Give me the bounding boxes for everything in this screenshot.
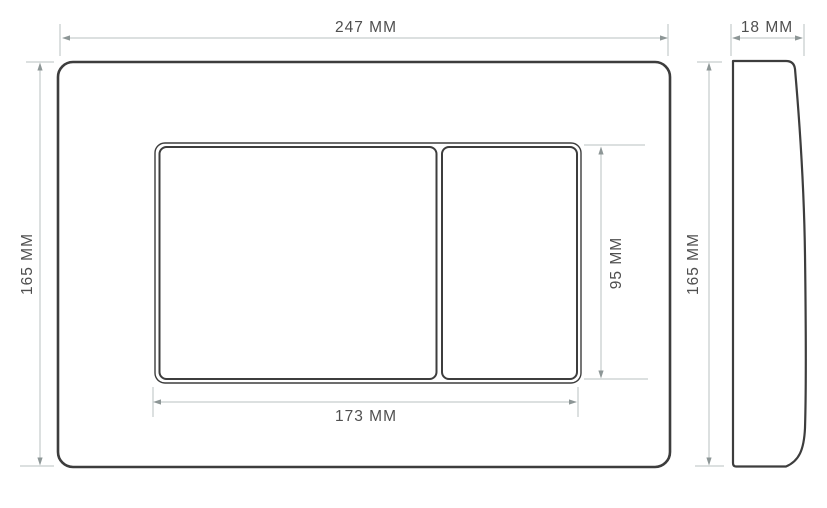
side-view [733,61,806,467]
front-width-label: 247 MM [335,19,397,36]
front-height-label: 165 MM [19,233,36,295]
dimension-drawing-canvas: 247 MM 165 MM 173 MM 95 MM 165 MM [0,0,827,508]
small-flush-button [442,147,577,379]
dimension-side-depth: 18 MM [731,19,804,56]
panel-width-label: 173 MM [335,408,397,425]
arrowhead-right-icon [795,35,803,40]
arrowhead-down-icon [706,458,711,466]
arrowhead-down-icon [598,371,603,379]
panel-height-label: 95 MM [608,237,625,289]
arrowhead-left-icon [62,35,70,40]
dimension-front-width: 247 MM [60,19,668,56]
button-recess-outline [155,143,581,383]
dimension-front-height: 165 MM [19,62,54,466]
arrowhead-up-icon [598,147,603,155]
side-depth-label: 18 MM [741,19,793,36]
arrowhead-down-icon [37,458,42,466]
arrowhead-left-icon [732,35,740,40]
flush-plate-drawing: 247 MM 165 MM 173 MM 95 MM 165 MM [0,0,827,508]
dimension-panel-height: 95 MM [584,145,648,379]
side-profile-outline [733,61,806,467]
arrowhead-right-icon [569,399,577,404]
dimension-panel-width: 173 MM [153,387,578,425]
dimension-side-height: 165 MM [685,62,724,466]
arrowhead-up-icon [37,63,42,71]
arrowhead-up-icon [706,63,711,71]
large-flush-button [160,147,437,379]
side-height-label: 165 MM [685,233,702,295]
arrowhead-right-icon [660,35,668,40]
arrowhead-left-icon [153,399,161,404]
